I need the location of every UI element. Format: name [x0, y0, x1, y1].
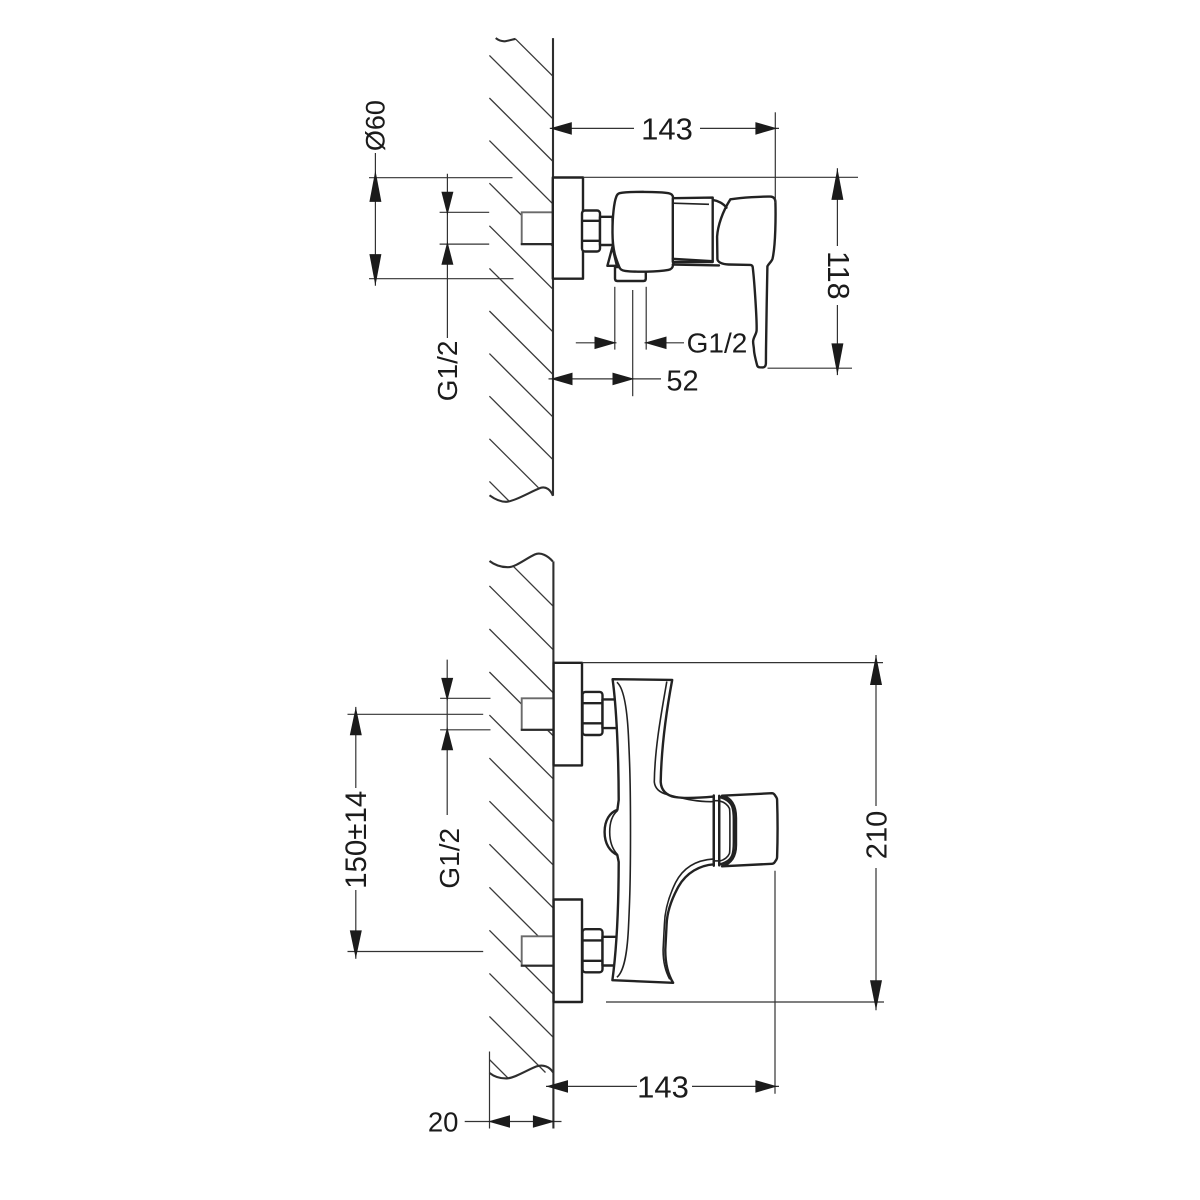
svg-text:20: 20 [428, 1107, 459, 1138]
svg-text:118: 118 [821, 251, 855, 300]
svg-text:143: 143 [637, 1070, 689, 1105]
svg-text:G1/2: G1/2 [434, 828, 465, 889]
svg-text:Ø60: Ø60 [361, 100, 391, 151]
svg-text:143: 143 [641, 112, 693, 147]
svg-text:210: 210 [861, 811, 893, 859]
svg-text:G1/2: G1/2 [687, 327, 748, 358]
svg-text:150±14: 150±14 [340, 791, 373, 889]
svg-text:52: 52 [666, 366, 698, 398]
svg-text:G1/2: G1/2 [432, 341, 463, 402]
